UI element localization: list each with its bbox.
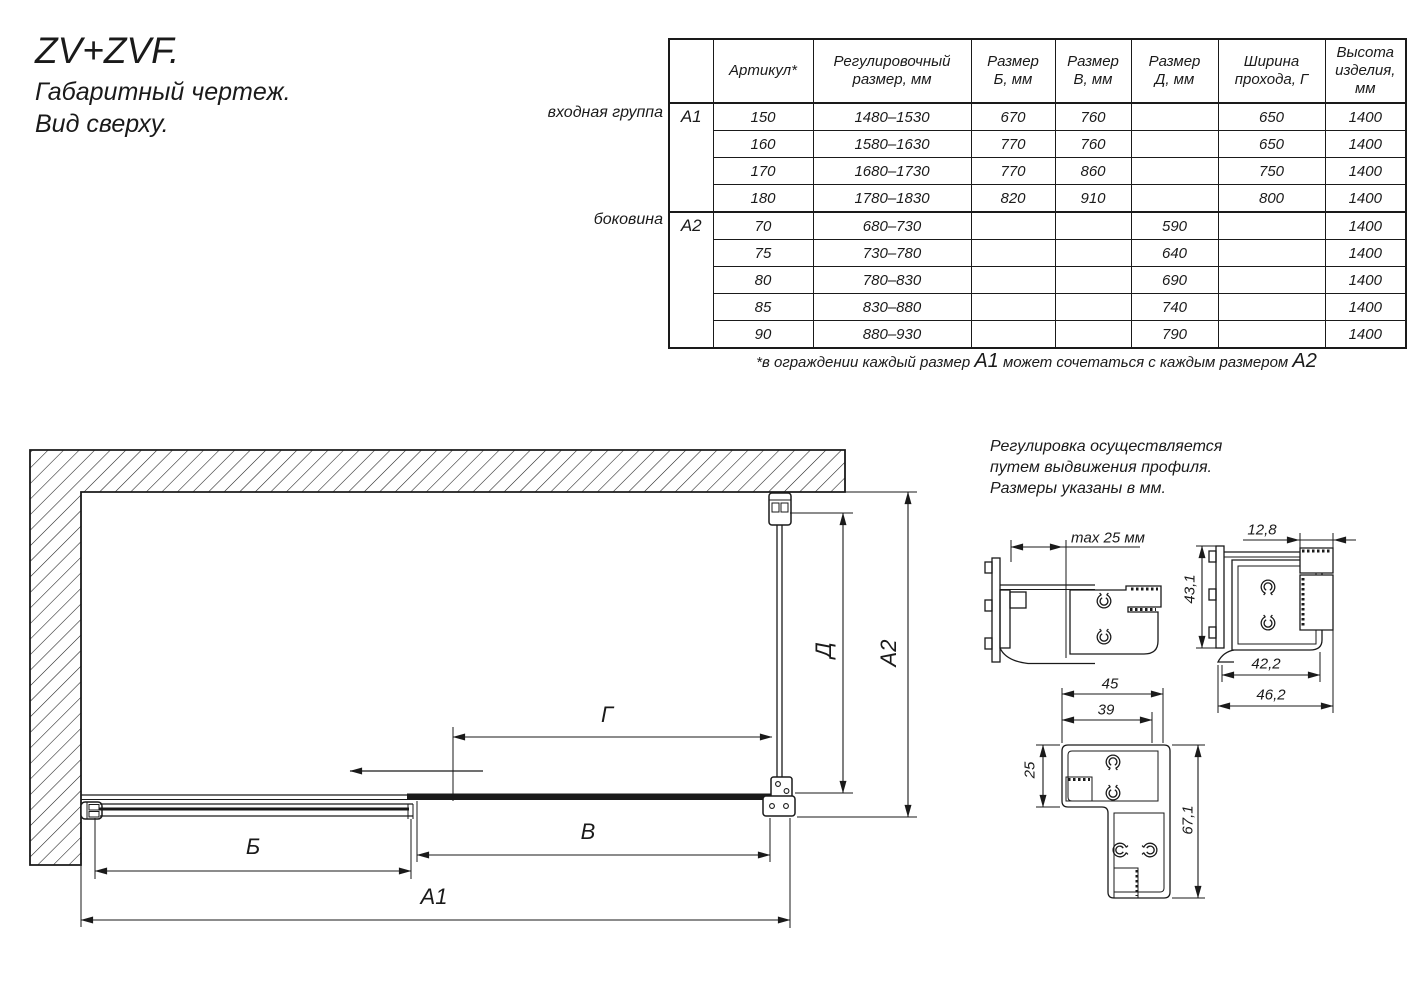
table-cell [971,294,1055,321]
table-cell: 770 [971,158,1055,185]
dim-label-67-1: 67,1 [1180,805,1197,834]
table-cell [1055,294,1131,321]
note-line-3: Размеры указаны в мм. [990,478,1222,499]
table-cell: 1400 [1325,321,1406,349]
note-line-2: путем выдвижения профиля. [990,457,1222,478]
table-cell: 1400 [1325,158,1406,185]
row-group-label-side: боковина [500,211,663,229]
table-row: 1601580–16307707606501400 [669,131,1406,158]
table-cell: 670 [971,103,1055,131]
footnote-a1: А1 [974,350,998,372]
table-cell: 170 [713,158,813,185]
table-cell [1055,321,1131,349]
dim-label-b: Б [246,834,260,860]
group-id-cell: А1 [669,103,713,212]
table-cell [971,212,1055,240]
row-group-label-entrance: входная группа [500,104,663,122]
table-cell: 910 [1055,185,1131,213]
dim-label-46-2: 46,2 [1256,687,1285,704]
table-cell [1218,240,1325,267]
note-line-1: Регулировка осуществляется [990,436,1222,457]
table-row: А11501480–15306707606501400 [669,103,1406,131]
table-cell [1055,240,1131,267]
table-cell: 1780–1830 [813,185,971,213]
table-cell: 590 [1131,212,1218,240]
table-cell: 1400 [1325,240,1406,267]
table-cell: 1580–1630 [813,131,971,158]
table-cell: 1400 [1325,267,1406,294]
table-cell: 770 [971,131,1055,158]
table-cell [1055,267,1131,294]
table-row: А270680–7305901400 [669,212,1406,240]
dim-label-a2: А2 [876,640,902,667]
table-cell [1131,158,1218,185]
table-cell: 740 [1131,294,1218,321]
table-cell: 690 [1131,267,1218,294]
table-cell: 1400 [1325,185,1406,213]
table-cell: 1400 [1325,294,1406,321]
table-cell [1218,267,1325,294]
dim-label-d: Д [811,642,837,658]
plan-view [30,450,917,928]
footnote: *в ограждении каждый размер А1 может соч… [668,350,1405,373]
drawing-page: ZV+ZVF. Габаритный чертеж. Вид сверху. в… [0,0,1415,1000]
table-cell: 820 [971,185,1055,213]
header-passage-width: Ширина прохода, Г [1218,39,1325,103]
table-cell: 880–930 [813,321,971,349]
wall-hatch [30,450,845,865]
table-row: 75730–7806401400 [669,240,1406,267]
table-cell [971,267,1055,294]
table-cell: 150 [713,103,813,131]
table-cell [1131,185,1218,213]
table-cell: 160 [713,131,813,158]
table-cell [1218,321,1325,349]
table-row: 1701680–17307708607501400 [669,158,1406,185]
table-group-a2: А270680–730590140075730–780640140080780–… [669,212,1406,348]
table-cell: 1680–1730 [813,158,971,185]
table-cell: 860 [1055,158,1131,185]
table-cell: 1400 [1325,103,1406,131]
profile-detail-1 [985,540,1161,664]
table-group-a1: А11501480–153067076065014001601580–16307… [669,103,1406,212]
table-cell: 680–730 [813,212,971,240]
table-row: 85830–8807401400 [669,294,1406,321]
table-cell: 760 [1055,131,1131,158]
table-cell [1218,294,1325,321]
dim-label-12-8: 12,8 [1247,522,1276,539]
header-size-d: Размер Д, мм [1131,39,1218,103]
table-cell [1131,131,1218,158]
group-id-cell: А2 [669,212,713,348]
adjustment-note: Регулировка осуществляется путем выдвиже… [990,436,1222,499]
table-cell [971,321,1055,349]
table-cell: 640 [1131,240,1218,267]
table-cell: 800 [1218,185,1325,213]
table-cell [1218,212,1325,240]
dim-label-43-1: 43,1 [1182,574,1199,603]
table-cell: 90 [713,321,813,349]
dimension-table: Артикул* Регулировочный размер, мм Разме… [668,38,1407,349]
table-cell: 85 [713,294,813,321]
table-cell: 650 [1218,131,1325,158]
dim-label-a1: А1 [421,884,448,910]
dim-label-v: В [581,819,596,845]
page-title: ZV+ZVF. [35,30,179,72]
table-cell: 180 [713,185,813,213]
header-empty [669,39,713,103]
table-header-row: Артикул* Регулировочный размер, мм Разме… [669,39,1406,103]
table-cell: 75 [713,240,813,267]
table-row: 1801780–18308209108001400 [669,185,1406,213]
header-size-b: Размер Б, мм [971,39,1055,103]
table-cell: 80 [713,267,813,294]
footnote-text-1: *в ограждении каждый размер [756,354,974,371]
table-cell [971,240,1055,267]
table-cell: 1400 [1325,212,1406,240]
table-cell: 830–880 [813,294,971,321]
table-cell: 780–830 [813,267,971,294]
header-product-height: Высота изделия, мм [1325,39,1406,103]
table-cell [1055,212,1131,240]
table-cell: 790 [1131,321,1218,349]
dim-label-39: 39 [1098,702,1115,719]
table-row: 80780–8306901400 [669,267,1406,294]
table-cell: 1400 [1325,131,1406,158]
table-cell [1131,103,1218,131]
table-cell: 1480–1530 [813,103,971,131]
title-subtitle-2: Вид сверху. [35,110,169,139]
footnote-a2: А2 [1292,350,1316,372]
title-subtitle-1: Габаритный чертеж. [35,78,291,107]
header-size-v: Размер В, мм [1055,39,1131,103]
profile-detail-3 [1036,688,1205,898]
table-cell: 750 [1218,158,1325,185]
header-articul: Артикул* [713,39,813,103]
table-cell: 650 [1218,103,1325,131]
table-cell: 70 [713,212,813,240]
dim-label-42-2: 42,2 [1251,656,1280,673]
dim-label-g: Г [601,702,613,728]
dim-label-max25: max 25 мм [1071,530,1145,547]
table-cell: 730–780 [813,240,971,267]
dim-label-45: 45 [1102,676,1119,693]
dim-label-25: 25 [1022,762,1039,779]
footnote-text-2: может сочетаться с каждым размером [999,354,1293,371]
table-cell: 760 [1055,103,1131,131]
header-adjust-size: Регулировочный размер, мм [813,39,971,103]
table-row: 90880–9307901400 [669,321,1406,349]
